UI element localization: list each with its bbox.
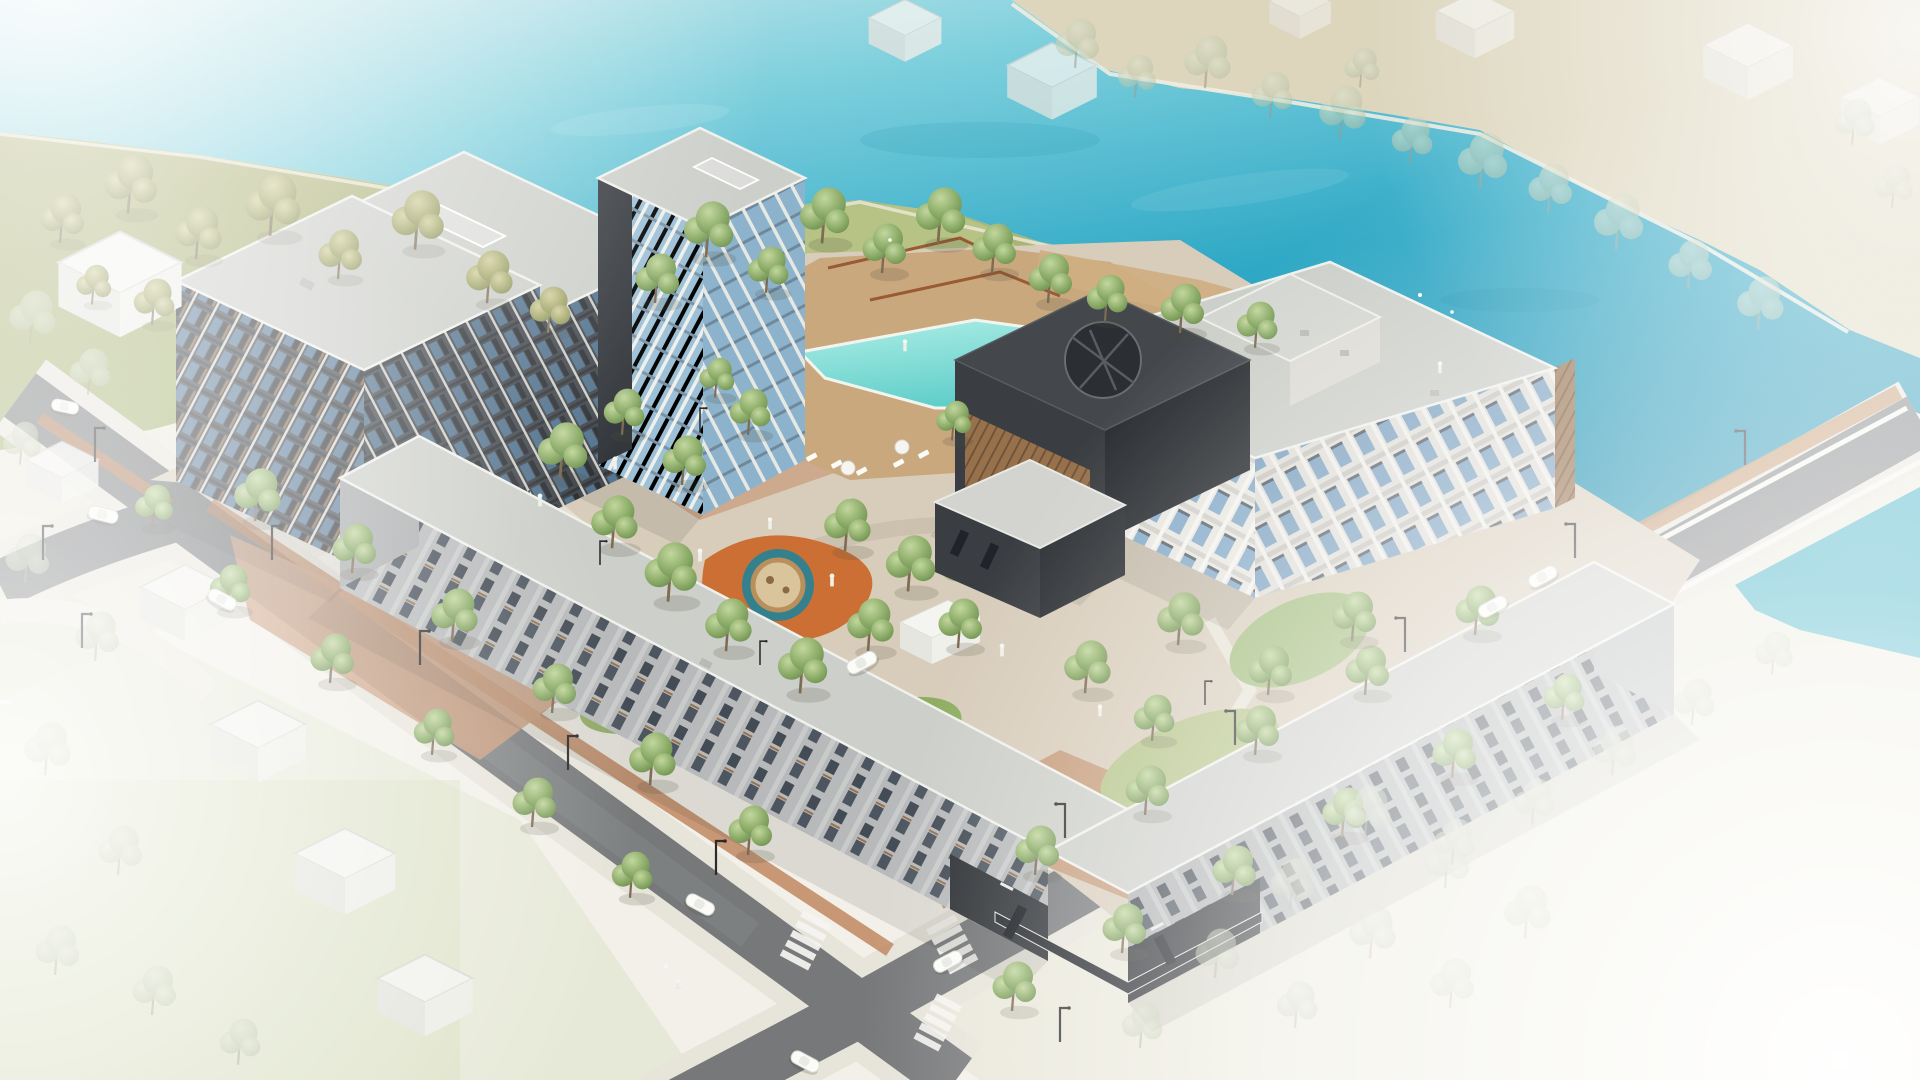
roof-unit xyxy=(1340,350,1349,356)
waterfront-balcony-band xyxy=(1555,358,1575,508)
render-canvas xyxy=(0,0,1920,1080)
roof-unit xyxy=(1430,390,1439,396)
bench xyxy=(0,700,12,704)
roof-unit xyxy=(1300,330,1309,336)
aerial-render xyxy=(0,0,1920,1080)
